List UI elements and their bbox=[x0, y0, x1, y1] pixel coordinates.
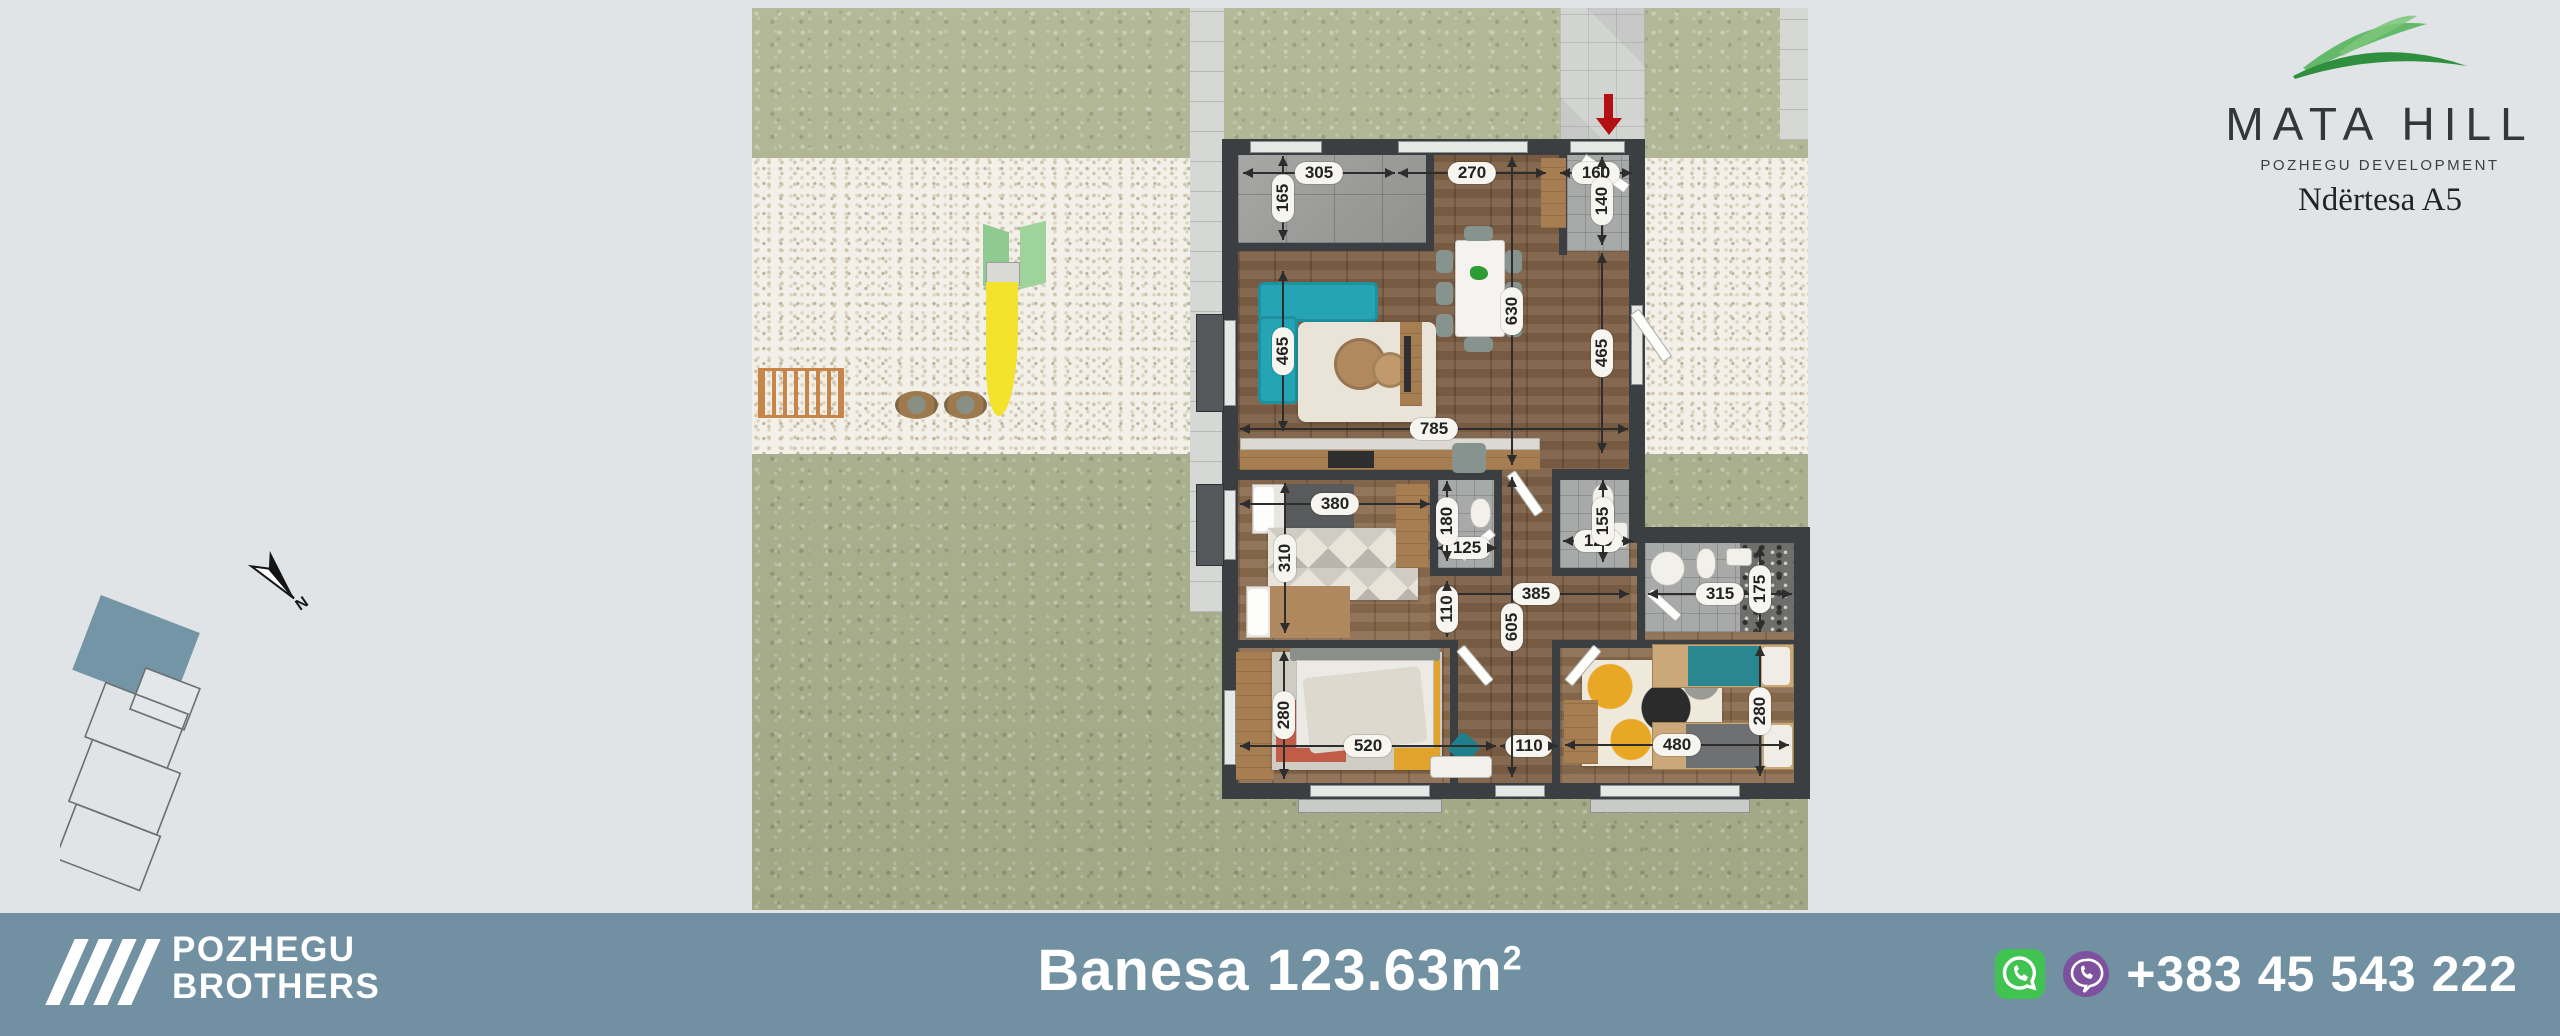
dim-label: 465 bbox=[1272, 327, 1294, 375]
dim-label: 180 bbox=[1436, 497, 1458, 545]
bathtub-round bbox=[1650, 551, 1685, 586]
window-bed2-bottom bbox=[1310, 785, 1430, 797]
dim-480: 480 bbox=[1565, 744, 1789, 746]
dining-chair bbox=[1436, 250, 1453, 273]
dim-180: 180 bbox=[1446, 481, 1448, 561]
flyer-canvas: 305 270 160 785 380 125 125 385 520 110 … bbox=[0, 0, 2560, 1036]
toilet bbox=[1470, 498, 1491, 528]
dim-label: 630 bbox=[1501, 287, 1523, 335]
brand-title: MATA HILL bbox=[2215, 97, 2545, 151]
bedroom2-wardrobe bbox=[1236, 652, 1274, 780]
dim-385: 385 bbox=[1443, 593, 1629, 595]
dim-380: 380 bbox=[1240, 503, 1430, 505]
wall-wc-bottom bbox=[1430, 568, 1502, 576]
dim-465-right: 465 bbox=[1601, 253, 1603, 453]
wall-bath1-bottom bbox=[1552, 568, 1645, 576]
company-name-line1: POZHEGU bbox=[172, 931, 380, 968]
dim-160: 160 bbox=[1560, 172, 1632, 174]
window-kids-bottom bbox=[1600, 785, 1740, 797]
dim-label: 110 bbox=[1436, 585, 1458, 632]
dim-280-left: 280 bbox=[1283, 651, 1285, 779]
window-living-left bbox=[1224, 320, 1236, 406]
dim-140: 140 bbox=[1601, 157, 1603, 245]
dim-110-corr1: 110 bbox=[1446, 581, 1448, 637]
brand-subtitle: POZHEGU DEVELOPMENT bbox=[2215, 157, 2545, 174]
wall-bath2-left bbox=[1637, 543, 1645, 640]
window-sill bbox=[1298, 799, 1442, 813]
company-name-line2: BROTHERS bbox=[172, 968, 380, 1005]
door-entry-gap bbox=[1570, 141, 1625, 153]
wall-bath1-left bbox=[1552, 480, 1560, 576]
dim-label: 165 bbox=[1272, 174, 1294, 222]
climbing-ladder bbox=[758, 368, 844, 418]
tv-screen bbox=[1404, 336, 1411, 392]
dim-155: 155 bbox=[1602, 480, 1604, 562]
toilet bbox=[1696, 548, 1716, 579]
dim-label: 480 bbox=[1653, 734, 1701, 756]
dim-label: 280 bbox=[1273, 691, 1295, 739]
dim-label: 280 bbox=[1749, 687, 1771, 735]
dining-table bbox=[1455, 240, 1505, 337]
pozhegu-logo-slashes bbox=[60, 925, 156, 1010]
dim-175: 175 bbox=[1759, 546, 1761, 632]
french-balcony bbox=[1196, 484, 1224, 566]
phone-number: +383 45 543 222 bbox=[2126, 945, 2518, 1003]
dim-785: 785 bbox=[1240, 428, 1628, 430]
dining-chair bbox=[1436, 314, 1453, 337]
footer-bar: POZHEGU BROTHERS Banesa 123.63m2 +383 45… bbox=[0, 913, 2560, 1036]
contact-block: +383 45 543 222 bbox=[1994, 945, 2518, 1003]
kitchen-counter bbox=[1240, 450, 1540, 470]
wall-living-bath1 bbox=[1552, 469, 1645, 480]
dim-label: 520 bbox=[1344, 735, 1392, 757]
play-barrel bbox=[895, 391, 938, 419]
window-bed1-left bbox=[1224, 490, 1236, 560]
site-plan-diagram bbox=[60, 595, 300, 895]
bed-pillow bbox=[1254, 487, 1274, 531]
whatsapp-icon bbox=[1994, 948, 2046, 1000]
bed-pillow bbox=[1248, 589, 1268, 635]
wall-wc-right bbox=[1494, 469, 1502, 576]
dim-label: 465 bbox=[1591, 329, 1613, 377]
bedroom1-wardrobe bbox=[1396, 484, 1428, 568]
wall-wing-top bbox=[1629, 527, 1810, 543]
brand-block: MATA HILL POZHEGU DEVELOPMENT Ndërtesa A… bbox=[2215, 10, 2545, 219]
dim-630: 630 bbox=[1511, 157, 1513, 465]
dim-465-left: 465 bbox=[1282, 271, 1284, 431]
bed-blanket bbox=[1688, 646, 1760, 686]
dim-110-corr2: 110 bbox=[1500, 745, 1558, 747]
cooktop bbox=[1328, 451, 1374, 468]
french-balcony bbox=[1196, 314, 1224, 412]
dim-label: 305 bbox=[1295, 162, 1343, 184]
area-text: Banesa 123.63m bbox=[1037, 938, 1502, 1003]
window-sill bbox=[1590, 799, 1750, 813]
bed-pillow bbox=[1762, 647, 1790, 685]
window-terrace bbox=[1250, 141, 1322, 153]
window-bed2-left bbox=[1224, 690, 1236, 765]
kitchen-backsplash bbox=[1240, 438, 1540, 450]
dining-chair bbox=[1464, 226, 1493, 241]
dim-label: 175 bbox=[1749, 565, 1771, 613]
apartment-area-title: Banesa 123.63m2 bbox=[1037, 937, 1522, 1004]
dining-chair bbox=[1464, 337, 1493, 352]
dim-label: 315 bbox=[1696, 583, 1744, 605]
dim-label: 270 bbox=[1448, 162, 1496, 184]
window-corridor-bottom bbox=[1495, 785, 1545, 797]
wall-wing-right bbox=[1794, 527, 1810, 799]
dim-label: 785 bbox=[1410, 418, 1458, 440]
dim-270: 270 bbox=[1398, 172, 1546, 174]
dim-label: 380 bbox=[1311, 493, 1359, 515]
dim-label: 155 bbox=[1592, 497, 1614, 545]
wall-bed2-top bbox=[1222, 640, 1450, 648]
dim-310: 310 bbox=[1284, 483, 1286, 633]
dim-280-right: 280 bbox=[1759, 646, 1761, 776]
dining-chair bbox=[1436, 282, 1453, 305]
window-dining bbox=[1398, 141, 1528, 153]
table-plant bbox=[1470, 266, 1488, 280]
kitchen-stool bbox=[1452, 443, 1486, 473]
dim-label: 605 bbox=[1501, 603, 1523, 651]
dim-label: 385 bbox=[1512, 583, 1560, 605]
entry-arrow-stem bbox=[1604, 94, 1613, 120]
building-name: Ndërtesa A5 bbox=[2215, 182, 2545, 219]
sink bbox=[1726, 548, 1752, 566]
kids-dresser bbox=[1564, 700, 1598, 764]
dim-label: 310 bbox=[1274, 534, 1296, 582]
wall-kids-left bbox=[1552, 648, 1560, 783]
pozhegu-logo: POZHEGU BROTHERS bbox=[60, 925, 380, 1010]
dim-305: 305 bbox=[1243, 172, 1395, 174]
dining-chair bbox=[1505, 250, 1522, 273]
desk bbox=[1430, 756, 1492, 778]
slide-panel bbox=[1020, 221, 1046, 289]
play-barrel bbox=[944, 391, 987, 419]
viber-icon bbox=[2062, 950, 2110, 998]
area-superscript: 2 bbox=[1503, 940, 1523, 978]
dim-605: 605 bbox=[1511, 477, 1513, 777]
corner-walkway bbox=[1780, 8, 1808, 140]
entry-arrow-icon bbox=[1596, 118, 1622, 135]
dim-label: 140 bbox=[1591, 177, 1613, 225]
dim-165: 165 bbox=[1282, 156, 1284, 240]
dim-520: 520 bbox=[1240, 745, 1496, 747]
mata-hill-leaf-logo bbox=[2275, 10, 2485, 92]
